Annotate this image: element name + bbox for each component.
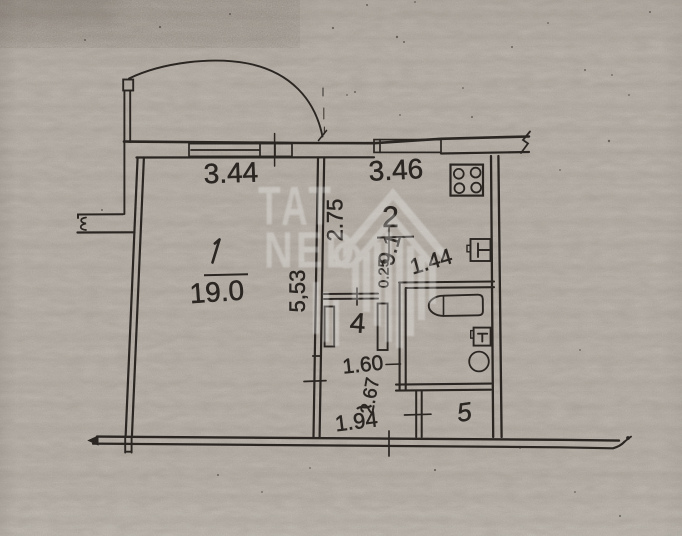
svg-text:19.0: 19.0 (189, 275, 246, 310)
svg-text:1.60: 1.60 (341, 351, 384, 378)
svg-text:1.94: 1.94 (334, 406, 380, 436)
svg-text:3.44: 3.44 (203, 156, 259, 189)
svg-text:3.46: 3.46 (368, 153, 424, 187)
